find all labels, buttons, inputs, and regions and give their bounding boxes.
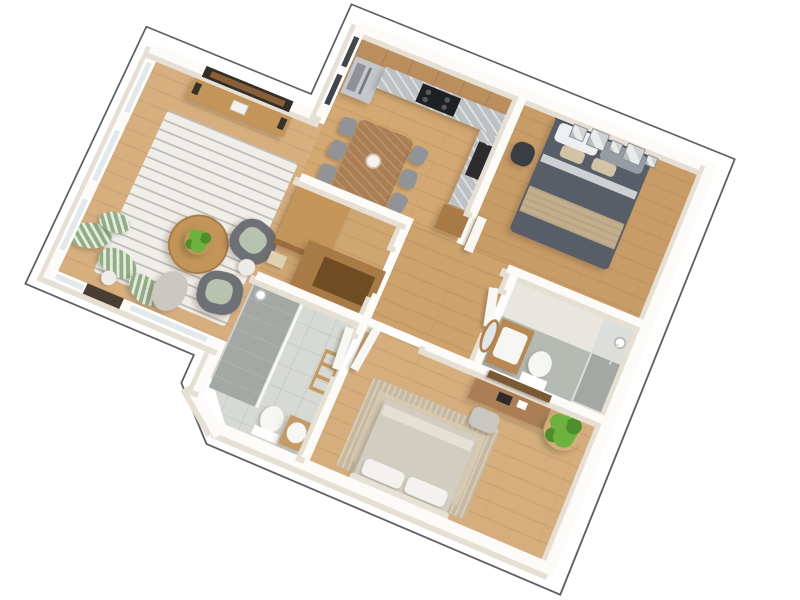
floorplan — [3, 0, 745, 600]
tv-niche — [202, 66, 294, 112]
gallery-frame-5 — [644, 154, 659, 168]
tv-niche-wood-back — [210, 71, 286, 107]
gallery-frame-2 — [586, 128, 610, 152]
gallery-frame-1 — [569, 123, 588, 142]
render-canvas — [0, 0, 800, 600]
ensuite-oval-mirror — [475, 317, 503, 356]
bedroom2-wall-shelf — [487, 370, 552, 403]
gallery-frame-3 — [608, 140, 624, 155]
gallery-frame-4 — [622, 142, 646, 166]
